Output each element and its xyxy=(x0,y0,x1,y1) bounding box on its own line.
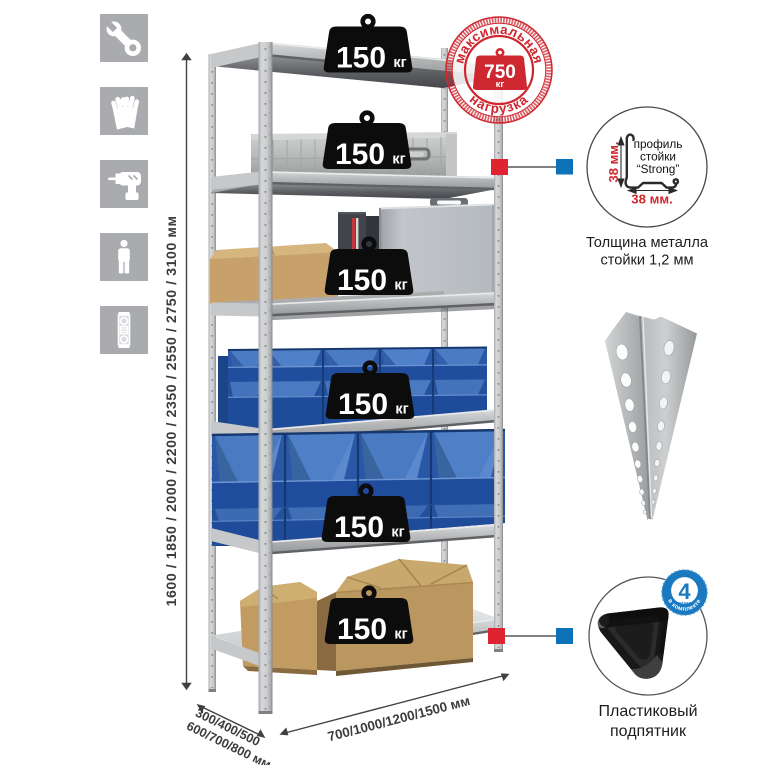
svg-text:150: 150 xyxy=(334,511,384,544)
svg-text:1600 / 1850 / 2000 / 2200 / 23: 1600 / 1850 / 2000 / 2200 / 2350 / 2550 … xyxy=(164,215,180,606)
svg-text:150: 150 xyxy=(336,42,386,75)
svg-text:стойки 1,2 мм: стойки 1,2 мм xyxy=(600,253,693,269)
svg-text:Толщина металла: Толщина металла xyxy=(586,235,709,251)
svg-text:кг: кг xyxy=(496,79,505,90)
svg-text:кг: кг xyxy=(395,402,408,418)
svg-text:150: 150 xyxy=(338,388,388,421)
svg-text:150: 150 xyxy=(337,264,387,297)
svg-text:подпятник: подпятник xyxy=(610,723,687,740)
svg-text:кг: кг xyxy=(394,627,407,643)
svg-text:150: 150 xyxy=(337,613,387,646)
svg-text:кг: кг xyxy=(391,525,404,541)
svg-text:38 мм.: 38 мм. xyxy=(606,142,621,183)
svg-text:штуки: штуки xyxy=(678,601,692,606)
svg-text:38 мм.: 38 мм. xyxy=(631,192,673,207)
svg-text:“Strong”: “Strong” xyxy=(637,162,680,176)
svg-text:150: 150 xyxy=(335,138,385,171)
svg-text:Пластиковый: Пластиковый xyxy=(598,703,697,720)
svg-text:кг: кг xyxy=(393,55,406,71)
svg-text:кг: кг xyxy=(392,152,405,168)
svg-text:кг: кг xyxy=(394,278,407,294)
